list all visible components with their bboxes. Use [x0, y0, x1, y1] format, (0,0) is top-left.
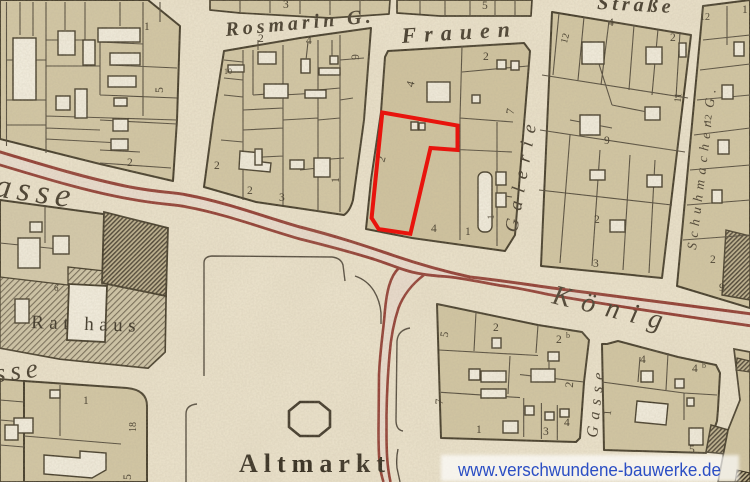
svg-text:www.verschwundene-bauwerke.de: www.verschwundene-bauwerke.de — [457, 460, 721, 480]
